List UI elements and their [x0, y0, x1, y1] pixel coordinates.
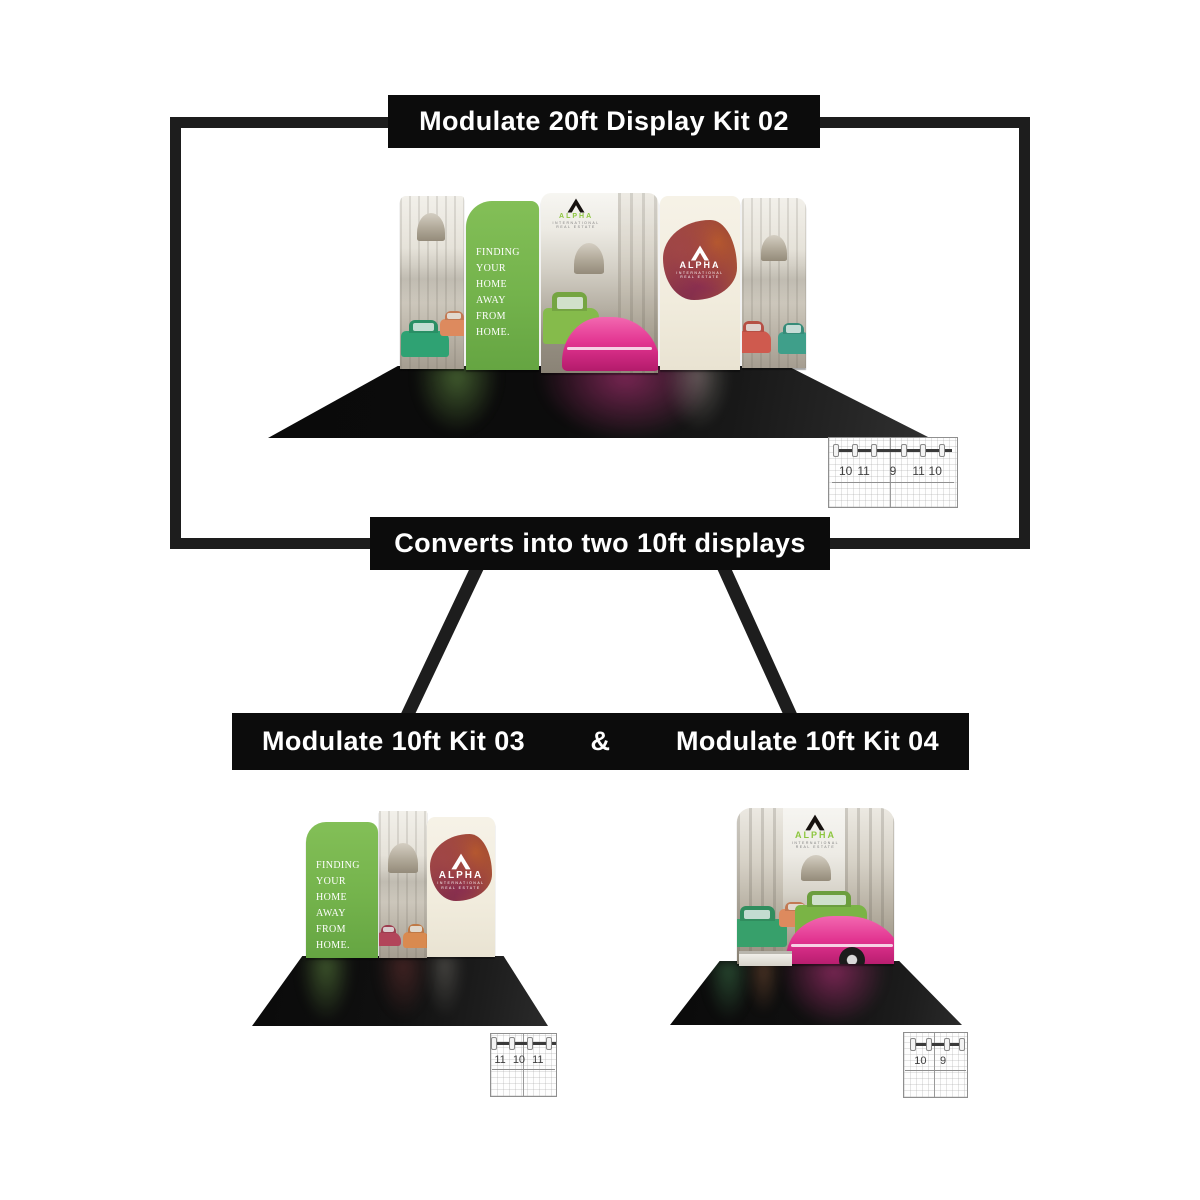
diagram-clip [926, 1038, 932, 1051]
alpha-wordmark: ALPHA [679, 261, 720, 271]
diagram-clip [920, 444, 926, 457]
kit02-panel-cuba-map: ALPHA INTERNATIONAL REAL ESTATE [660, 196, 740, 370]
diagram-clip [910, 1038, 916, 1051]
diagram-number: 10 [929, 464, 942, 478]
kit04-display-base [739, 951, 792, 966]
classic-car-red [742, 331, 771, 353]
converts-label: Converts into two 10ft displays [394, 528, 805, 559]
capitol-dome [388, 843, 419, 872]
diagram-clip [491, 1037, 497, 1050]
floor-reflection-cream [665, 366, 731, 431]
diagram-number: 11 [857, 464, 869, 478]
green-panel-text: FINDING YOUR HOME AWAY FROM HOME. [316, 858, 372, 954]
floor-reflection-green [299, 956, 352, 1023]
diagram-number: 9 [890, 464, 897, 478]
alpha-wordmark: ALPHA [795, 831, 836, 841]
car-chrome-trim [567, 347, 653, 350]
kit02-panel-diagram: 10 11 9 11 10 [828, 437, 958, 508]
diagram-baseline [832, 482, 955, 483]
floor-reflection-green [414, 366, 500, 434]
classic-car-orange [403, 932, 427, 948]
kit04-panel-havana: ALPHA INTERNATIONAL REAL ESTATE [737, 808, 894, 964]
diagram-number: 10 [839, 464, 852, 478]
diagram-clip [871, 444, 877, 457]
diagram-baseline [492, 1069, 554, 1070]
car-chrome-trim [791, 944, 892, 947]
diagram-clip [546, 1037, 552, 1050]
alpha-logo: ALPHA INTERNATIONAL REAL ESTATE [671, 245, 729, 280]
diagram-clip [833, 444, 839, 457]
alpha-a-icon [689, 245, 711, 261]
classic-car-maroon [379, 932, 401, 947]
kits-banner: Modulate 10ft Kit 03 & Modulate 10ft Kit… [232, 713, 969, 770]
diagram-number: 11 [494, 1054, 505, 1066]
alpha-logo: ALPHA INTERNATIONAL REAL ESTATE [550, 198, 601, 230]
alpha-a-icon [566, 198, 586, 213]
alpha-logo: ALPHA INTERNATIONAL REAL ESTATE [435, 853, 487, 890]
diagram-clip [939, 444, 945, 457]
diagram-baseline [905, 1070, 966, 1071]
alpha-subline-2: REAL ESTATE [796, 845, 836, 850]
floor-reflection-maroon [376, 956, 429, 1019]
diagram-number: 9 [940, 1055, 946, 1067]
diagram-number: 11 [532, 1054, 543, 1066]
kit02-panel-havana-right [742, 198, 806, 368]
floor-reflection-pink [781, 961, 886, 1025]
kit03-title-label: Modulate 10ft Kit 03 [262, 726, 525, 757]
car-wheel [839, 947, 865, 964]
diagram-clip [944, 1038, 950, 1051]
converts-banner: Converts into two 10ft displays [370, 517, 830, 570]
capitol-dome [417, 213, 445, 241]
kit02-panel-green-message: FINDING YOUR HOME AWAY FROM HOME. [466, 201, 539, 370]
alpha-subline-2: REAL ESTATE [556, 225, 596, 230]
alpha-logo: ALPHA INTERNATIONAL REAL ESTATE [783, 814, 849, 850]
classic-car-orange [440, 319, 464, 336]
kit02-panel-center: ALPHA INTERNATIONAL REAL ESTATE [541, 193, 658, 373]
diagram-clip [852, 444, 858, 457]
alpha-subline-2: REAL ESTATE [441, 886, 481, 891]
alpha-wordmark: ALPHA [559, 213, 593, 221]
diagram-number: 11 [912, 464, 924, 478]
alpha-wordmark: ALPHA [439, 870, 483, 881]
diagram-number: 10 [914, 1055, 926, 1067]
classic-car-teal [778, 332, 806, 354]
kit02-panel-havana-left [400, 196, 464, 369]
kit02-title-banner: Modulate 20ft Display Kit 02 [388, 95, 820, 148]
floor-reflection-cream [424, 956, 465, 1019]
ampersand-label: & [591, 726, 611, 757]
infographic-canvas: FINDING YOUR HOME AWAY FROM HOME. ALPHA … [0, 0, 1200, 1200]
diagram-clip [509, 1037, 515, 1050]
diagram-clip [901, 444, 907, 457]
capitol-dome [761, 235, 787, 261]
kit02-title-label: Modulate 20ft Display Kit 02 [419, 106, 789, 137]
alpha-subline-2: REAL ESTATE [680, 275, 720, 280]
green-panel-text: FINDING YOUR HOME AWAY FROM HOME. [476, 245, 533, 341]
kit03-floor [252, 956, 548, 1026]
diagram-rail [911, 1043, 964, 1046]
kit04-panel-diagram: 10 9 [903, 1032, 968, 1098]
alpha-a-icon [803, 814, 827, 831]
kit03-panel-diagram: 11 10 11 [490, 1033, 557, 1097]
floor-reflection-orange [746, 961, 781, 1015]
capitol-dome [574, 243, 604, 274]
kit03-panel-havana [379, 811, 427, 958]
diagram-clip [527, 1037, 533, 1050]
connector-lines [0, 0, 1200, 1200]
kit03-panel-cuba-map: ALPHA INTERNATIONAL REAL ESTATE [427, 817, 495, 957]
alpha-a-icon [449, 853, 473, 870]
diagram-number: 10 [513, 1054, 525, 1066]
capitol-dome [801, 855, 831, 882]
kit04-title-label: Modulate 10ft Kit 04 [676, 726, 939, 757]
kit03-panel-green-message: FINDING YOUR HOME AWAY FROM HOME. [306, 822, 378, 958]
diagram-clip [959, 1038, 965, 1051]
